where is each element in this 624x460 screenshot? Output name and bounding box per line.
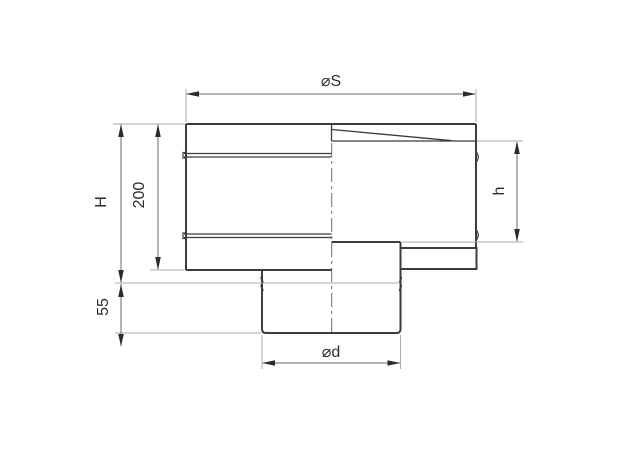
pipe-adapter-drawing: ⌀S H 200 55 h [0, 0, 624, 460]
arrow-down [118, 270, 124, 283]
label-top-diameter: ⌀S [321, 73, 341, 90]
arrow-right [463, 91, 476, 97]
arrow-up [118, 124, 124, 137]
arrow-right [388, 360, 401, 366]
section-details [183, 124, 478, 333]
dimension-total-height: H [93, 124, 124, 283]
dimension-inner-height: h [491, 141, 520, 242]
label-spigot-length: 55 [95, 298, 112, 316]
arrow-down [514, 229, 520, 242]
arrow-down [118, 334, 124, 347]
cone-diagonal [332, 130, 452, 141]
technical-drawing-page: ⌀S H 200 55 h [0, 0, 624, 460]
dimension-spigot-length: 55 [95, 284, 124, 347]
arrow-up [118, 284, 124, 297]
dimension-body-height: 200 [131, 124, 161, 270]
extension-lines [113, 89, 523, 369]
label-bottom-diameter: ⌀d [322, 344, 341, 361]
dimension-bottom-diameter: ⌀d [262, 344, 401, 366]
dimension-top-diameter: ⌀S [186, 73, 476, 97]
right-flange-section [401, 248, 477, 269]
label-body-height: 200 [131, 182, 148, 209]
arrow-left [262, 360, 275, 366]
label-inner-height: h [491, 187, 508, 196]
arrow-left [186, 91, 199, 97]
arrow-up [155, 124, 161, 137]
arrow-down [155, 257, 161, 270]
arrow-up [514, 141, 520, 154]
label-total-height: H [93, 196, 110, 208]
